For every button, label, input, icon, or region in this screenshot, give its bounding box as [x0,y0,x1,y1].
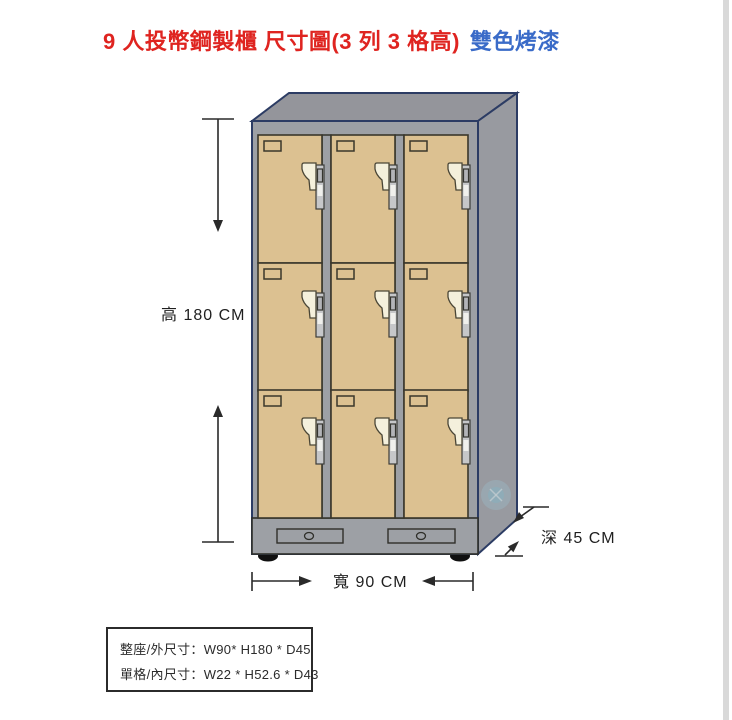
locker-door [404,390,470,518]
vent-hole-left [305,533,314,540]
height-dimension: 高 180 CM [161,119,245,542]
spec-box: 整座/外尺寸：W90* H180 * D45 單格/內尺寸：W22 * H52.… [106,627,313,692]
spec-outer-size: 整座/外尺寸：W90* H180 * D45 [120,639,311,658]
width-dimension: 寬 90 CM [252,572,473,591]
arrow-right-icon [299,576,312,586]
scrollbar-track[interactable] [723,0,729,720]
height-dimension-label: 高 180 CM [161,306,245,324]
locker-door [258,390,324,518]
watermark [481,480,511,510]
locker-diagram: 高 180 CM 寬 90 CM 深 45 CM [0,0,732,720]
product-dimension-page: 9 人投幣鋼製櫃 尺寸圖(3 列 3 格高)雙色烤漆 [0,0,732,720]
locker-door [404,263,470,391]
arrow-left-icon [422,576,435,586]
locker-door [258,263,324,391]
arrow-up-icon [213,405,223,417]
vent-hole-right [417,533,426,540]
locker-door [404,135,470,263]
width-dimension-label: 寬 90 CM [333,573,408,591]
spec-inner-size: 單格/內尺寸：W22 * H52.6 * D43 [120,664,311,683]
depth-dimension-label: 深 45 CM [541,529,616,547]
cabinet [252,93,517,562]
arrow-down-icon [213,220,223,232]
locker-door [331,135,397,263]
locker-door [331,263,397,391]
locker-door [331,390,397,518]
locker-door [258,135,324,263]
cabinet-top-face [252,93,517,121]
